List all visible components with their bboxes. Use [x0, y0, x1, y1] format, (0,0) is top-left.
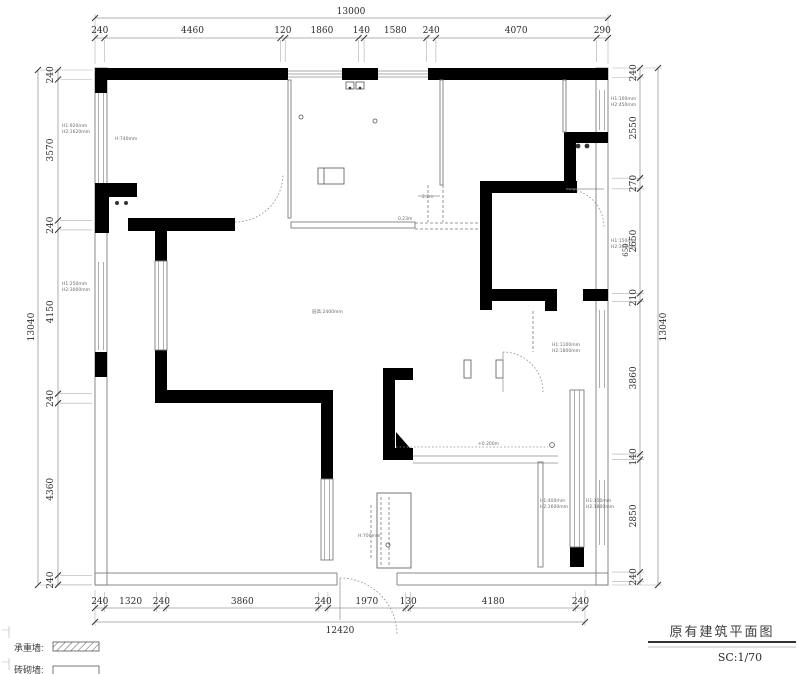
- dim-right-7: 2850: [629, 504, 639, 527]
- note-beam2: 2.2m: [422, 194, 434, 200]
- floor-plan-drawing: 13000 240 4460 120 1860 140 1580 240 407…: [0, 0, 800, 674]
- legend: 承重墙: 砖砌墙:: [2, 626, 99, 674]
- dim-bot-6: 130: [400, 597, 417, 607]
- door-leaf-symbol: [396, 432, 410, 448]
- drawing-title: 原有建筑平面图: [669, 624, 774, 639]
- dim-left-3: 4150: [46, 300, 56, 323]
- dim-bot-0: 240: [91, 597, 108, 607]
- note-tl-3: H:740mm: [115, 136, 137, 142]
- dim-right-8: 240: [629, 568, 639, 585]
- left-dimension-chain: 13040 240 3570 240 4150 240 4360 240: [27, 66, 92, 589]
- dim-left-1: 3570: [46, 138, 56, 161]
- fixture-symbols: [115, 87, 589, 547]
- dim-top-0: 240: [91, 26, 108, 36]
- note-br-3: H1:150mm: [586, 498, 611, 504]
- dim-right-0: 240: [629, 64, 639, 81]
- note-br-4: H2:1800mm: [586, 504, 614, 510]
- dim-right-4: 210: [629, 289, 639, 306]
- load-bearing-walls: [95, 68, 608, 567]
- dim-left-0: 240: [46, 66, 56, 83]
- dim-left-total: 13040: [27, 312, 37, 341]
- dim-right-2: 270: [629, 175, 639, 192]
- legend-load-bearing-swatch: [53, 642, 99, 651]
- dim-right-6: 140: [629, 448, 639, 465]
- floor-plan-sheet: 13000 240 4460 120 1860 140 1580 240 407…: [0, 0, 800, 674]
- dim-bot-8: 240: [572, 597, 589, 607]
- dim-right-5: 3860: [629, 366, 639, 389]
- top-dimension-chain: 13000 240 4460 120 1860 140 1580 240 407…: [91, 7, 611, 64]
- note-br-1: H1:400mm: [540, 498, 565, 504]
- dim-bot-2: 240: [153, 597, 170, 607]
- dim-top-4: 140: [353, 26, 370, 36]
- dim-bot-5: 1970: [355, 597, 378, 607]
- note-ml-2: H2:3000mm: [62, 287, 90, 293]
- dim-top-3: 1860: [310, 26, 333, 36]
- height-annotations: H1:920mm H2:1620mm H:740mm H1:250mm H2:3…: [62, 96, 636, 539]
- dim-bot-3: 3860: [231, 597, 254, 607]
- dim-top-2: 120: [274, 26, 291, 36]
- right-dimension-chain: 240 2550 270 2650 210 3860 140 2850 240 …: [612, 64, 669, 588]
- drawing-scale: SC:1/70: [718, 651, 762, 664]
- dim-bot-1: 1320: [119, 597, 142, 607]
- dim-bot-4: 240: [315, 597, 332, 607]
- dim-left-5: 4360: [46, 478, 56, 501]
- note-br-2: H2:1600mm: [540, 504, 568, 510]
- note-beam: 0.23m: [398, 216, 412, 222]
- note-tl-2: H2:1620mm: [62, 129, 90, 135]
- entrance-opening: [337, 572, 397, 587]
- note-ml-1: H1:250mm: [62, 281, 87, 287]
- note-tl-1: H1:920mm: [62, 123, 87, 129]
- note-mr-2: H2:300mm: [611, 244, 636, 250]
- door-arcs: [235, 174, 604, 392]
- note-ceiling: 层高:2400mm: [312, 308, 343, 315]
- legend-brick-swatch: [53, 666, 99, 674]
- note-tr-2: H2:450mm: [611, 102, 636, 108]
- dim-left-6: 240: [46, 571, 56, 588]
- note-flue: H:700mm: [358, 533, 380, 539]
- note-door-2: H2:1800mm: [552, 348, 580, 354]
- note-door-1: H1:1100mm: [552, 342, 580, 348]
- dim-left-4: 240: [46, 390, 56, 407]
- dim-top-7: 4070: [505, 26, 528, 36]
- dim-bottom-total: 12420: [326, 626, 355, 636]
- note-mr-1: H1:150mm: [611, 238, 636, 244]
- interior-walls: [155, 80, 584, 568]
- dim-top-6: 240: [423, 26, 440, 36]
- legend-brick-label: 砖砌墙:: [14, 664, 44, 674]
- dim-top-5: 1580: [384, 26, 407, 36]
- legend-load-bearing-label: 承重墙:: [14, 642, 44, 653]
- title-block: 原有建筑平面图 SC:1/70: [648, 624, 796, 664]
- dim-top-8: 290: [594, 26, 611, 36]
- dim-top-1: 4460: [181, 26, 204, 36]
- note-tr-1: H1:100mm: [611, 96, 636, 102]
- exterior-thin-walls: [95, 68, 608, 585]
- dim-top-total: 13000: [337, 7, 366, 17]
- dim-right-1: 2550: [629, 116, 639, 139]
- dim-bot-7: 4180: [482, 597, 505, 607]
- dim-right-total: 13040: [659, 312, 669, 341]
- dim-left-2: 240: [46, 216, 56, 233]
- note-level: +0.200m: [478, 441, 499, 447]
